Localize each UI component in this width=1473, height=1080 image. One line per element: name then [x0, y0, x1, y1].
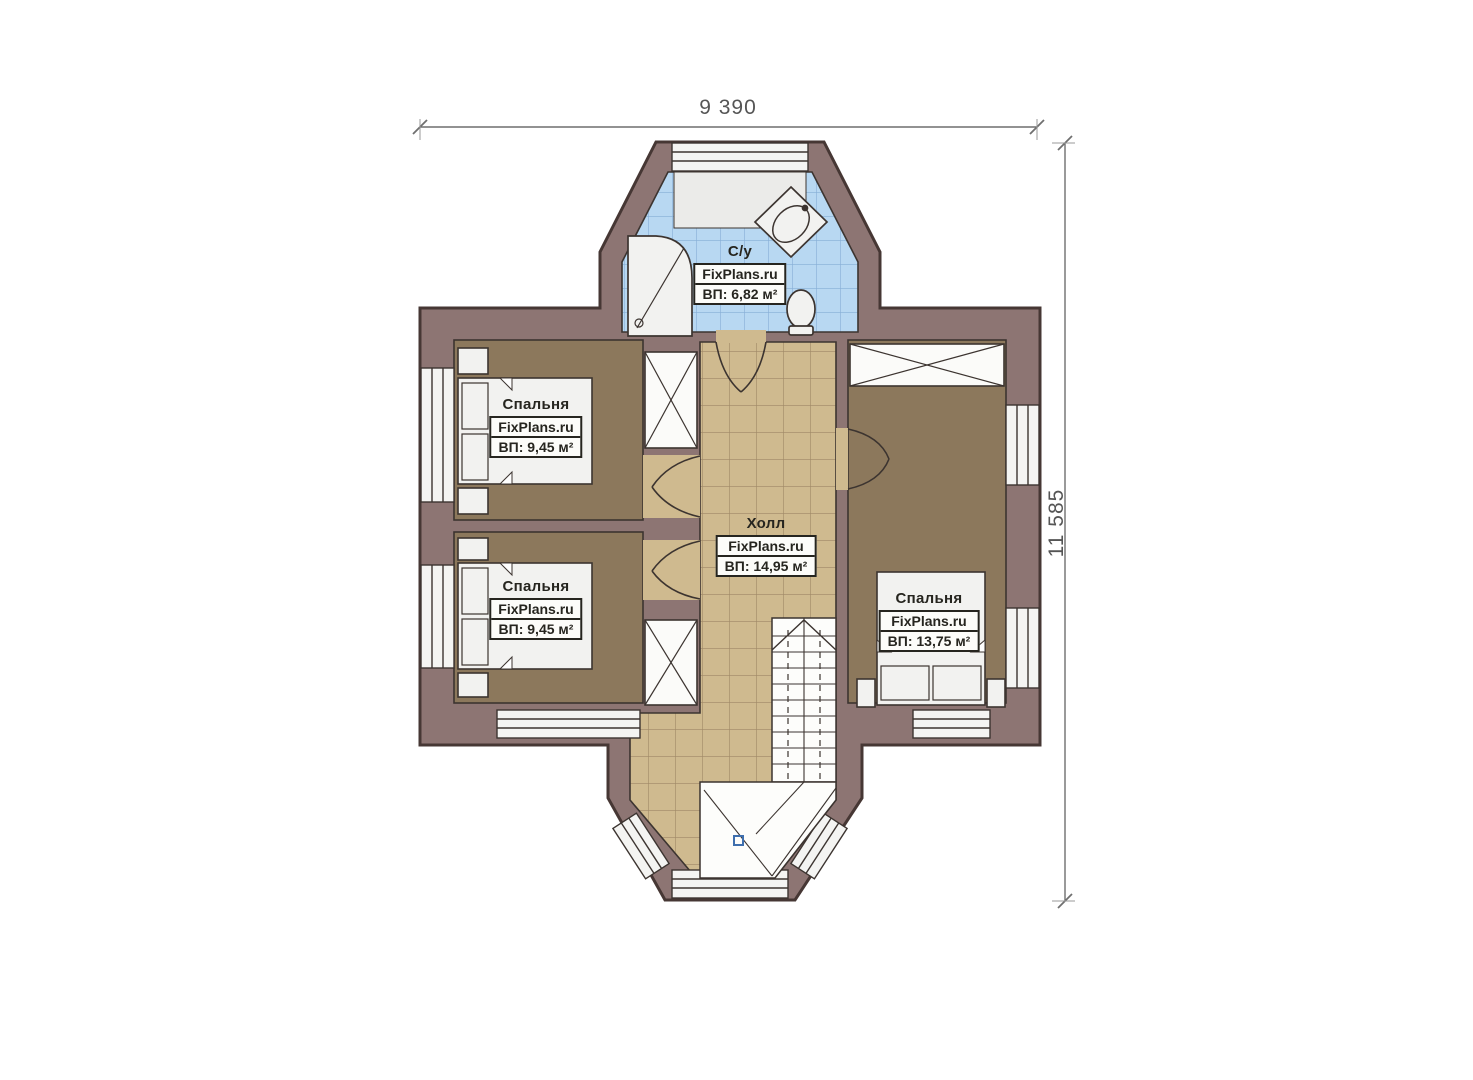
room-name-bedroom-right: Спальня [896, 590, 963, 607]
door-gap-bedroom-bottom-left [643, 540, 700, 600]
room-label-bedroom-bottom-left: Спальня FixPlans.ru ВП: 9,45 м² [489, 578, 582, 640]
room-brand-bathroom: FixPlans.ru [695, 265, 784, 283]
room-infobox-bedroom-right: FixPlans.ru ВП: 13,75 м² [879, 610, 980, 652]
window-right-upper [1006, 405, 1039, 485]
window-left-lower [421, 565, 454, 668]
room-area-hall: ВП: 14,95 м² [718, 555, 815, 575]
window-left-upper [421, 368, 454, 502]
room-name-bedroom-bottom-left: Спальня [503, 578, 570, 595]
room-brand-bedroom-bottom-left: FixPlans.ru [491, 600, 580, 618]
window-right-lower [1006, 608, 1039, 688]
room-infobox-bedroom-top-left: FixPlans.ru ВП: 9,45 м² [489, 416, 582, 458]
wardrobe-bedroom-bottom-left [645, 620, 697, 705]
room-name-bedroom-top-left: Спальня [503, 396, 570, 413]
toilet [787, 290, 815, 335]
room-infobox-bedroom-bottom-left: FixPlans.ru ВП: 9,45 м² [489, 598, 582, 640]
room-brand-bedroom-top-left: FixPlans.ru [491, 418, 580, 436]
room-label-hall: Холл FixPlans.ru ВП: 14,95 м² [716, 515, 817, 577]
room-brand-hall: FixPlans.ru [718, 537, 815, 555]
room-name-bathroom: С/у [728, 243, 752, 260]
dimension-width-line [413, 119, 1044, 140]
room-label-bedroom-top-left: Спальня FixPlans.ru ВП: 9,45 м² [489, 396, 582, 458]
door-gap-bedroom-right [836, 428, 848, 490]
room-brand-bedroom-right: FixPlans.ru [881, 612, 978, 630]
floor-plan-canvas: 9 390 11 585 С/у FixPlans.ru ВП: 6,82 м²… [0, 0, 1473, 1080]
window-bottom-right-wing [913, 710, 990, 738]
room-label-bedroom-right: Спальня FixPlans.ru ВП: 13,75 м² [879, 590, 980, 652]
wardrobe-bedroom-top-left [645, 352, 697, 448]
dimension-height-label: 11 585 [1045, 489, 1069, 558]
room-infobox-bathroom: FixPlans.ru ВП: 6,82 м² [693, 263, 786, 305]
window-bottom-left-wing [497, 710, 640, 738]
dimension-width-label: 9 390 [699, 96, 757, 120]
room-area-bathroom: ВП: 6,82 м² [695, 283, 784, 303]
wardrobe-bedroom-right [850, 344, 1004, 386]
room-label-bathroom: С/у FixPlans.ru ВП: 6,82 м² [693, 243, 786, 305]
room-name-hall: Холл [747, 515, 786, 532]
window-bathroom-top [672, 143, 808, 171]
room-infobox-hall: FixPlans.ru ВП: 14,95 м² [716, 535, 817, 577]
room-area-bedroom-top-left: ВП: 9,45 м² [491, 436, 580, 456]
door-gap-bathroom [716, 330, 766, 343]
room-area-bedroom-right: ВП: 13,75 м² [881, 630, 978, 650]
room-area-bedroom-bottom-left: ВП: 9,45 м² [491, 618, 580, 638]
